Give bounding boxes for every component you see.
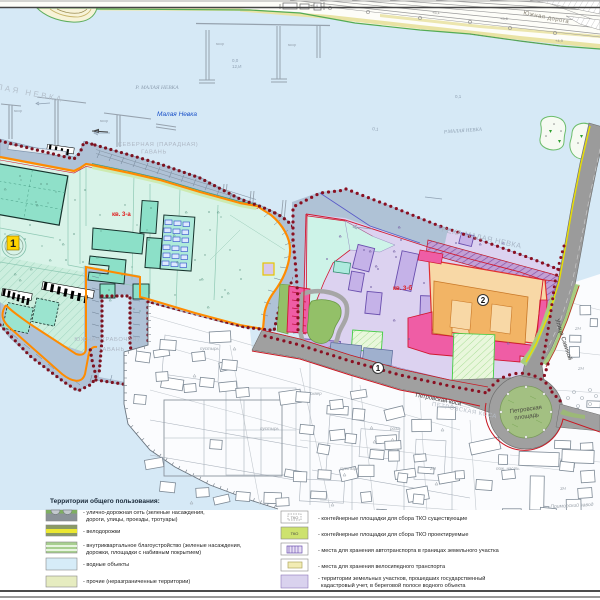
svg-text:1: 1 (10, 238, 16, 250)
svg-text:пустырь: пустырь (200, 346, 220, 351)
svg-text:- контейнерные площадки для сб: - контейнерные площадки для сбора ТКО су… (318, 515, 467, 522)
svg-text:ГАВАНЬ: ГАВАНЬ (99, 347, 125, 353)
svg-text:ГАВАНЬ: ГАВАНЬ (141, 150, 167, 156)
svg-text:кв. 3-а: кв. 3-а (112, 212, 131, 218)
svg-text:- места для хранения велосипед: - места для хранения велосипедного транс… (318, 564, 446, 570)
svg-text:0,0: 0,0 (232, 58, 239, 63)
svg-text:- территории земельных участко: - территории земельных участков, прошедш… (318, 575, 485, 582)
svg-text:- контейнерные площадки для сб: - контейнерные площадки для сбора ТКО пр… (318, 531, 468, 538)
svg-text:+5,1: +5,1 (432, 10, 441, 15)
svg-text:- внутриквартальное благоустро: - внутриквартальное благоустройство (зел… (83, 542, 242, 549)
svg-text:- места для хранения автотранс: - места для хранения автотранспорта в гр… (318, 548, 500, 554)
svg-text:2Н: 2Н (429, 466, 437, 471)
svg-text:пустырь: пустырь (260, 426, 280, 431)
svg-text:моор: моор (14, 109, 22, 113)
svg-text:2Н: 2Н (577, 366, 585, 371)
svg-text:0,1: 0,1 (455, 94, 462, 99)
svg-text:ТКО: ТКО (291, 531, 299, 536)
svg-text:кадастровый учет, в береговой: кадастровый учет, в береговой полосе вод… (321, 582, 466, 589)
svg-text:3Н: 3Н (560, 486, 567, 491)
svg-text:+4,9: +4,9 (555, 38, 564, 43)
svg-text:СЕВЕРНАЯ (ПАРАДНАЯ): СЕВЕРНАЯ (ПАРАДНАЯ) (118, 142, 199, 148)
svg-text:12,И: 12,И (232, 64, 242, 69)
svg-text:Р. МАЛАЯ НЕВКА: Р. МАЛАЯ НЕВКА (134, 85, 179, 91)
svg-text:+5,6: +5,6 (500, 16, 509, 21)
svg-text:моор: моор (288, 43, 296, 47)
svg-text:Территории общего пользования:: Территории общего пользования: (50, 497, 160, 505)
svg-text:1: 1 (376, 364, 381, 373)
svg-text:- велодорожки: - велодорожки (83, 529, 120, 535)
svg-text:моор: моор (100, 119, 108, 123)
svg-text:сквер: сквер (310, 391, 322, 396)
svg-text:моор: моор (216, 42, 224, 46)
svg-text:пустырь: пустырь (340, 466, 360, 471)
svg-text:2: 2 (481, 296, 486, 305)
svg-text:ЮЖНАЯ (РАБОЧАЯ): ЮЖНАЯ (РАБОЧАЯ) (74, 337, 139, 343)
svg-text:роза: роза (389, 426, 400, 431)
svg-text:- водные объекты: - водные объекты (83, 562, 129, 568)
svg-text:ТКО: ТКО (291, 515, 299, 520)
svg-text:2Н: 2Н (574, 326, 582, 331)
svg-text:- прочие (неразграниченные тер: - прочие (неразграниченные территории) (83, 579, 190, 585)
svg-text:кв. 3-б: кв. 3-б (393, 285, 412, 292)
svg-text:Малая Невка: Малая Невка (157, 111, 197, 118)
svg-text:дорожки, площадки с набивным п: дорожки, площадки с набивным покрытием) (86, 550, 201, 556)
svg-text:дороги, улицы, проезды, тротуа: дороги, улицы, проезды, тротуары) (86, 517, 178, 523)
svg-text:- улично-дорожная сеть (зелены: - улично-дорожная сеть (зеленые насажден… (83, 510, 205, 516)
